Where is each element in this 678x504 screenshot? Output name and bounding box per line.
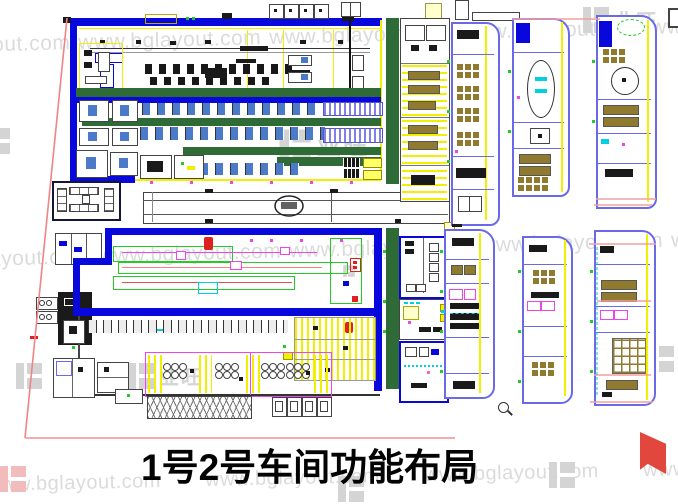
roof-unit bbox=[314, 4, 329, 19]
workshop2-wall-mid bbox=[73, 308, 382, 316]
detail-strip-s3-part bbox=[596, 306, 650, 307]
annex-room-a-part bbox=[429, 253, 439, 262]
desk-grid bbox=[532, 362, 556, 378]
desk-grid-part bbox=[457, 72, 463, 78]
roof-unit-part bbox=[319, 9, 322, 12]
desk-grid-part bbox=[532, 362, 538, 368]
desk-grid-part bbox=[526, 185, 532, 191]
detail-strip-s3-part bbox=[646, 234, 648, 400]
annex-room-b-part bbox=[408, 321, 411, 324]
round-meeting-table bbox=[611, 67, 639, 95]
annex-north-part bbox=[429, 45, 437, 51]
detail-strip-n3-part bbox=[622, 143, 625, 146]
production-line bbox=[113, 246, 233, 262]
annex-room-b-part bbox=[403, 306, 419, 320]
desk-grid-part bbox=[457, 140, 463, 146]
desk-grid-part bbox=[532, 370, 538, 376]
detail-strip-s2-part bbox=[524, 326, 567, 327]
machine-cluster-row bbox=[150, 77, 270, 85]
equipment-pad bbox=[302, 397, 317, 417]
workshop1-office-room-part bbox=[84, 62, 92, 68]
plan-layer-part bbox=[441, 310, 445, 313]
annex-north-part bbox=[408, 85, 440, 94]
desk-grid-part bbox=[518, 177, 524, 183]
annex-room-b-part bbox=[419, 327, 431, 332]
detail-strip-s3-part bbox=[601, 280, 637, 290]
detail-strip-n1-part bbox=[458, 196, 482, 212]
roof-box bbox=[145, 14, 177, 24]
corner-mark bbox=[63, 17, 71, 23]
workshop1-plan-part bbox=[270, 181, 273, 184]
round-table-cluster-part bbox=[163, 371, 171, 379]
utility-rooms-west-part bbox=[59, 241, 67, 246]
equipment-pad-part bbox=[290, 401, 298, 412]
outbuilding-part bbox=[72, 359, 73, 397]
machine-station-part bbox=[301, 57, 308, 63]
detail-strip-n3-part bbox=[598, 133, 651, 134]
round-table-cluster-part bbox=[277, 363, 285, 371]
desk-grid-part bbox=[611, 57, 617, 63]
desk-grid-part bbox=[465, 64, 471, 70]
plan-layer-part bbox=[508, 70, 511, 73]
roof-unit bbox=[341, 2, 361, 17]
annex-room-c-part bbox=[427, 371, 430, 374]
machine bbox=[136, 40, 141, 44]
detail-strip-s3-part bbox=[614, 310, 628, 320]
green-aisle bbox=[76, 88, 381, 97]
desk-grid-part bbox=[518, 185, 524, 191]
detail-strip-n3-part bbox=[598, 99, 651, 100]
red-station-part bbox=[353, 266, 357, 269]
canteen-rooms-part bbox=[148, 355, 164, 393]
detail-strip-n1-part bbox=[453, 156, 494, 157]
machine bbox=[338, 40, 343, 44]
workshop2-wall-left bbox=[73, 258, 80, 315]
desk-grid-part bbox=[473, 64, 479, 70]
plan-layer-part bbox=[518, 380, 521, 383]
annex-room-a-part bbox=[406, 284, 416, 292]
workshop1-plan-part bbox=[190, 181, 193, 184]
desk-grid-part bbox=[534, 177, 540, 183]
canteen-rooms-part bbox=[250, 353, 251, 395]
detail-strip-s1-part bbox=[450, 303, 480, 309]
detail-strip-n1-part bbox=[485, 26, 487, 220]
desk-grid-part bbox=[465, 108, 471, 114]
detail-strip-n3-part bbox=[601, 139, 609, 144]
canteen-rooms bbox=[145, 352, 332, 397]
conveyor-machine bbox=[236, 59, 256, 63]
machine-cell-part bbox=[88, 132, 97, 141]
rack-storage-yellow-part bbox=[313, 326, 318, 330]
round-table-cluster-part bbox=[223, 371, 231, 379]
office-room-west-part bbox=[69, 204, 99, 212]
porch bbox=[115, 389, 143, 404]
plan-layer-part bbox=[383, 300, 386, 303]
workshop2-plan-part bbox=[250, 239, 253, 242]
plan-layer-part bbox=[440, 250, 443, 253]
utility-rooms-west-part bbox=[74, 247, 82, 252]
title-caption: 1号2号车间功能布局 bbox=[141, 437, 478, 491]
plan-layer-part bbox=[590, 270, 593, 273]
round-table-cluster bbox=[261, 363, 285, 379]
capacitor-bank-part bbox=[46, 314, 52, 320]
desk-grid-part bbox=[533, 278, 539, 284]
detail-strip-n2-part bbox=[516, 23, 530, 43]
plan-layer-part bbox=[508, 130, 511, 133]
corridor-gate bbox=[330, 189, 338, 193]
roof-unit-part bbox=[274, 9, 277, 12]
detail-strip-n1-part bbox=[453, 54, 494, 55]
detail-strip-s1-part bbox=[479, 233, 481, 393]
roof-unit bbox=[284, 4, 299, 19]
workshop1-plan-part bbox=[350, 181, 353, 184]
desk-grid-part bbox=[540, 370, 546, 376]
annex-room-b bbox=[399, 299, 447, 340]
detail-strip-s1 bbox=[444, 229, 495, 399]
office-room-west bbox=[52, 181, 121, 221]
green-belt-south bbox=[386, 228, 399, 389]
detail-strip-s2-part bbox=[564, 240, 566, 396]
desk-grid-part bbox=[473, 116, 479, 122]
corridor-gate bbox=[395, 219, 401, 223]
annex-room-c-part bbox=[411, 383, 427, 388]
annex-north-part bbox=[408, 141, 438, 150]
roof-structures-part bbox=[192, 17, 195, 20]
detail-strip-n2-part bbox=[517, 96, 520, 99]
magenta-fixture bbox=[280, 247, 290, 255]
crane-rail-line bbox=[349, 20, 351, 88]
annex-north-part bbox=[426, 25, 446, 41]
round-table-cluster-part bbox=[231, 371, 239, 379]
desk-grid-part bbox=[534, 185, 540, 191]
plan-layer-part bbox=[590, 370, 593, 373]
green-belt-north bbox=[386, 18, 399, 184]
strip-label-mark bbox=[452, 224, 462, 227]
porch-part bbox=[127, 394, 130, 397]
annex-room-b-part bbox=[416, 302, 420, 304]
machine-cell-part bbox=[181, 162, 184, 165]
red-chip bbox=[352, 296, 358, 302]
rack-storage-yellow-part bbox=[343, 346, 348, 350]
machine-cell bbox=[79, 128, 109, 146]
annex-north-part bbox=[411, 45, 419, 51]
blue-chip bbox=[343, 281, 349, 286]
desk-grid-part bbox=[548, 370, 554, 376]
desk-grid-part bbox=[465, 72, 471, 78]
capacitor-bank-part bbox=[39, 300, 45, 306]
workshop2-plan-part bbox=[270, 239, 273, 242]
detail-strip-s1-part bbox=[446, 337, 489, 338]
annex-room-c-part bbox=[419, 347, 429, 357]
detail-strip-n3-part bbox=[605, 169, 633, 177]
annex-north bbox=[400, 18, 450, 202]
workshop2-wall-top bbox=[105, 228, 382, 235]
equipment-pad bbox=[272, 397, 287, 417]
detail-strip-n2-part-part bbox=[538, 134, 542, 138]
detail-strip-s3-part bbox=[600, 246, 614, 253]
desk-grid-part bbox=[457, 64, 463, 70]
desk-grid-part bbox=[473, 94, 479, 100]
plan-layer-part bbox=[518, 270, 521, 273]
workshop2-plan-part bbox=[300, 239, 303, 242]
outbuilding-part bbox=[104, 367, 109, 372]
roof-vent bbox=[222, 13, 232, 19]
desk-grid-part bbox=[549, 270, 555, 276]
round-table-cluster-part bbox=[231, 363, 239, 371]
desk-grid-part bbox=[603, 57, 609, 63]
round-table-cluster-part bbox=[179, 363, 187, 371]
annex-room-b-part bbox=[404, 302, 408, 304]
detail-strip-s3-part bbox=[596, 332, 650, 333]
canteen-rooms-part bbox=[239, 377, 243, 381]
roof-structures-part bbox=[186, 17, 189, 20]
machine-cell bbox=[76, 150, 108, 178]
office-room-west-part bbox=[57, 188, 67, 212]
detail-strip-n2 bbox=[512, 18, 570, 197]
plan-layer-part bbox=[592, 120, 595, 123]
desk-grid-part bbox=[541, 270, 547, 276]
machine-cell-part bbox=[86, 157, 96, 169]
detail-strip-s3-part bbox=[601, 292, 637, 302]
desk-grid-part bbox=[465, 86, 471, 92]
corridor-lane-line bbox=[143, 214, 448, 215]
detail-strip-s2 bbox=[522, 236, 573, 404]
office-room-west-part bbox=[104, 188, 114, 212]
conveyor-line bbox=[90, 48, 370, 49]
annex-north-part bbox=[411, 175, 435, 185]
workshop1-partition bbox=[283, 30, 284, 88]
machine bbox=[205, 40, 211, 44]
machine-cell bbox=[174, 155, 204, 179]
round-table-cluster-part bbox=[286, 371, 294, 379]
corridor-divider bbox=[152, 192, 153, 222]
desk-grid-part bbox=[603, 49, 609, 55]
office-room-west-part bbox=[82, 195, 90, 204]
rack-storage-yellow-part bbox=[295, 339, 375, 340]
round-table-cluster-part bbox=[171, 363, 179, 371]
outbuilding-part bbox=[78, 367, 83, 372]
annex-room-a-part bbox=[429, 243, 439, 252]
plan-layer-part bbox=[440, 370, 443, 373]
detail-strip-s1-part bbox=[452, 238, 474, 246]
detail-strip-s1-part bbox=[464, 265, 476, 275]
machine-station bbox=[288, 55, 312, 66]
detail-strip-s1-part bbox=[451, 265, 463, 275]
detail-strip-n2-part bbox=[514, 52, 564, 53]
detail-strip-s3-part bbox=[602, 392, 612, 397]
desk-grid-part bbox=[526, 177, 532, 183]
machine-cell bbox=[110, 152, 138, 176]
detail-strip-n1-part-part bbox=[469, 197, 470, 211]
red-station-part bbox=[353, 261, 357, 264]
machine-cell-part bbox=[88, 105, 97, 116]
machine-cell bbox=[112, 128, 138, 146]
round-table-cluster-part bbox=[179, 371, 187, 379]
desk-grid-part bbox=[542, 177, 548, 183]
detail-strip-s3-part bbox=[600, 310, 614, 320]
office-room-west-part bbox=[69, 187, 99, 195]
canteen-rooms-part bbox=[199, 355, 212, 393]
desk-grid-part bbox=[549, 278, 555, 284]
roof-unit bbox=[269, 4, 284, 19]
workshop1-office-room bbox=[79, 43, 123, 90]
red-label-mark bbox=[30, 336, 38, 339]
magenta-fixture bbox=[176, 251, 186, 260]
annex-north-part bbox=[401, 165, 449, 166]
capacitor-bank-part bbox=[46, 300, 52, 306]
workshop1-plan-part bbox=[310, 181, 313, 184]
annex-room-a-part bbox=[416, 284, 426, 292]
equipment-pad bbox=[287, 397, 302, 417]
desk-grid bbox=[457, 132, 481, 148]
workshop1-plan-part bbox=[230, 181, 233, 184]
detail-strip-s1-part bbox=[446, 259, 489, 260]
machine-station-part bbox=[301, 74, 308, 80]
machine-row bbox=[88, 320, 288, 333]
round-table-cluster-part bbox=[261, 371, 269, 379]
desk-grid-part bbox=[473, 72, 479, 78]
detail-strip-n2-part bbox=[519, 166, 551, 176]
desk-grid-part bbox=[473, 108, 479, 114]
desk-grid-part bbox=[540, 362, 546, 368]
plan-layer-part bbox=[440, 290, 443, 293]
detail-strip-n2-part bbox=[519, 154, 551, 164]
plan-layer bbox=[0, 0, 678, 504]
workshop1-plan-part bbox=[150, 181, 153, 184]
detail-strip-n2-part bbox=[514, 122, 564, 123]
workshop1-office-room-part bbox=[84, 50, 92, 56]
conveyor-line bbox=[90, 52, 370, 53]
desk-grid bbox=[457, 64, 481, 80]
desk-grid-part bbox=[542, 185, 548, 191]
machine-station bbox=[288, 72, 312, 83]
annex-room-c-part bbox=[404, 365, 442, 367]
canteen-rooms-part bbox=[190, 369, 194, 373]
desk-grid bbox=[457, 86, 481, 102]
detail-strip-n1-part bbox=[456, 168, 486, 178]
desk-grid bbox=[603, 49, 627, 65]
equipment-pad-part bbox=[305, 401, 313, 412]
plan-layer-part bbox=[383, 250, 386, 253]
desk-grid-part bbox=[473, 86, 479, 92]
plan-layer-part bbox=[518, 330, 521, 333]
annex-room-c-part bbox=[431, 349, 439, 355]
workshop1-inner-yellow-line bbox=[79, 28, 381, 29]
desk-grid-part bbox=[619, 57, 625, 63]
workshop1-office-room-part bbox=[85, 76, 107, 84]
red-machine bbox=[204, 237, 213, 250]
detail-strip-n1-part bbox=[453, 189, 494, 190]
detail-strip-n3 bbox=[596, 15, 657, 209]
round-table-cluster-part bbox=[277, 371, 285, 379]
green-aisle bbox=[183, 147, 381, 155]
desk-grid-part bbox=[548, 362, 554, 368]
yellow-bin bbox=[363, 158, 382, 168]
machine-row bbox=[140, 127, 325, 140]
round-meeting-table-part bbox=[622, 78, 626, 82]
machine-cell bbox=[63, 320, 85, 344]
round-table-cluster-part bbox=[269, 371, 277, 379]
pallet-block bbox=[343, 158, 360, 167]
annex-north-part bbox=[401, 63, 449, 64]
detail-strip-n2-part bbox=[561, 22, 563, 192]
annex-north-part bbox=[405, 25, 425, 41]
detail-strip-n2-part bbox=[514, 148, 564, 149]
capacitor-bank bbox=[36, 297, 58, 310]
roof-unit bbox=[455, 0, 469, 20]
desk-grid-part bbox=[611, 49, 617, 55]
desk-grid bbox=[518, 177, 550, 193]
desk-grid-part bbox=[465, 132, 471, 138]
roof-unit-part bbox=[289, 9, 292, 12]
workshop2-plan-part bbox=[72, 346, 75, 349]
detail-strip-s3-part bbox=[596, 264, 650, 265]
detail-strip-n3-part bbox=[603, 117, 639, 127]
detail-strip-n1-part bbox=[457, 30, 479, 39]
outbuilding-part bbox=[98, 377, 128, 378]
machine-cell-part bbox=[147, 161, 163, 172]
line-rail bbox=[122, 267, 322, 268]
magenta-fixture bbox=[230, 261, 242, 270]
round-table-cluster-part bbox=[215, 363, 223, 371]
desk-grid-part bbox=[457, 94, 463, 100]
detail-strip-s1-part bbox=[450, 313, 480, 320]
outbuilding bbox=[53, 358, 95, 398]
round-table-cluster-part bbox=[215, 371, 223, 379]
detail-strip-s2-part bbox=[529, 245, 547, 252]
desk-grid-part bbox=[465, 116, 471, 122]
detail-strip-s2-part bbox=[541, 301, 555, 311]
detail-strip-s3 bbox=[594, 230, 656, 406]
workshop1-office-room-part bbox=[98, 52, 110, 72]
plan-layer-part bbox=[447, 60, 450, 63]
machine-cell bbox=[112, 100, 138, 122]
machine-cell-part bbox=[187, 166, 195, 170]
annex-room-a-part bbox=[405, 249, 414, 254]
detail-strip-s2-part bbox=[524, 264, 567, 265]
detail-strip-s1-part bbox=[446, 283, 489, 284]
storage-rack bbox=[323, 102, 383, 116]
round-table-cluster-part bbox=[294, 363, 302, 371]
annex-north-part bbox=[408, 125, 438, 134]
green-oval-table bbox=[617, 19, 645, 36]
meeting-oval-table-part bbox=[535, 89, 547, 93]
cad-floorplan-canvas: www.bglayout.comwww.bglayout.comwww.bgla… bbox=[0, 0, 678, 504]
detail-strip-n3-part bbox=[598, 163, 651, 164]
roof-unit-part bbox=[304, 9, 307, 12]
detail-strip-n3-part bbox=[599, 21, 612, 47]
annex-north-part bbox=[408, 101, 436, 110]
detail-strip-n3-part bbox=[603, 105, 639, 115]
detail-strip-n3-part bbox=[647, 20, 649, 202]
outbuilding-part bbox=[56, 361, 72, 376]
magnifier-cursor bbox=[498, 402, 509, 413]
round-table-cluster-part bbox=[163, 363, 171, 371]
machine-cell-part bbox=[119, 158, 128, 168]
detail-strip-s1-part bbox=[464, 289, 476, 300]
desk-grid-part bbox=[457, 108, 463, 114]
annex-room-a-part bbox=[429, 273, 439, 282]
equipment-pad bbox=[317, 397, 332, 417]
detail-strip-s1-part bbox=[446, 373, 489, 374]
detail-strip-s1-part bbox=[453, 381, 475, 389]
machine-cell-part bbox=[69, 326, 77, 334]
desk-grid-part bbox=[465, 140, 471, 146]
detail-strip-s2-part bbox=[531, 292, 559, 298]
machine-row bbox=[142, 103, 322, 115]
desk-grid-part bbox=[457, 132, 463, 138]
desk-grid-part bbox=[457, 86, 463, 92]
